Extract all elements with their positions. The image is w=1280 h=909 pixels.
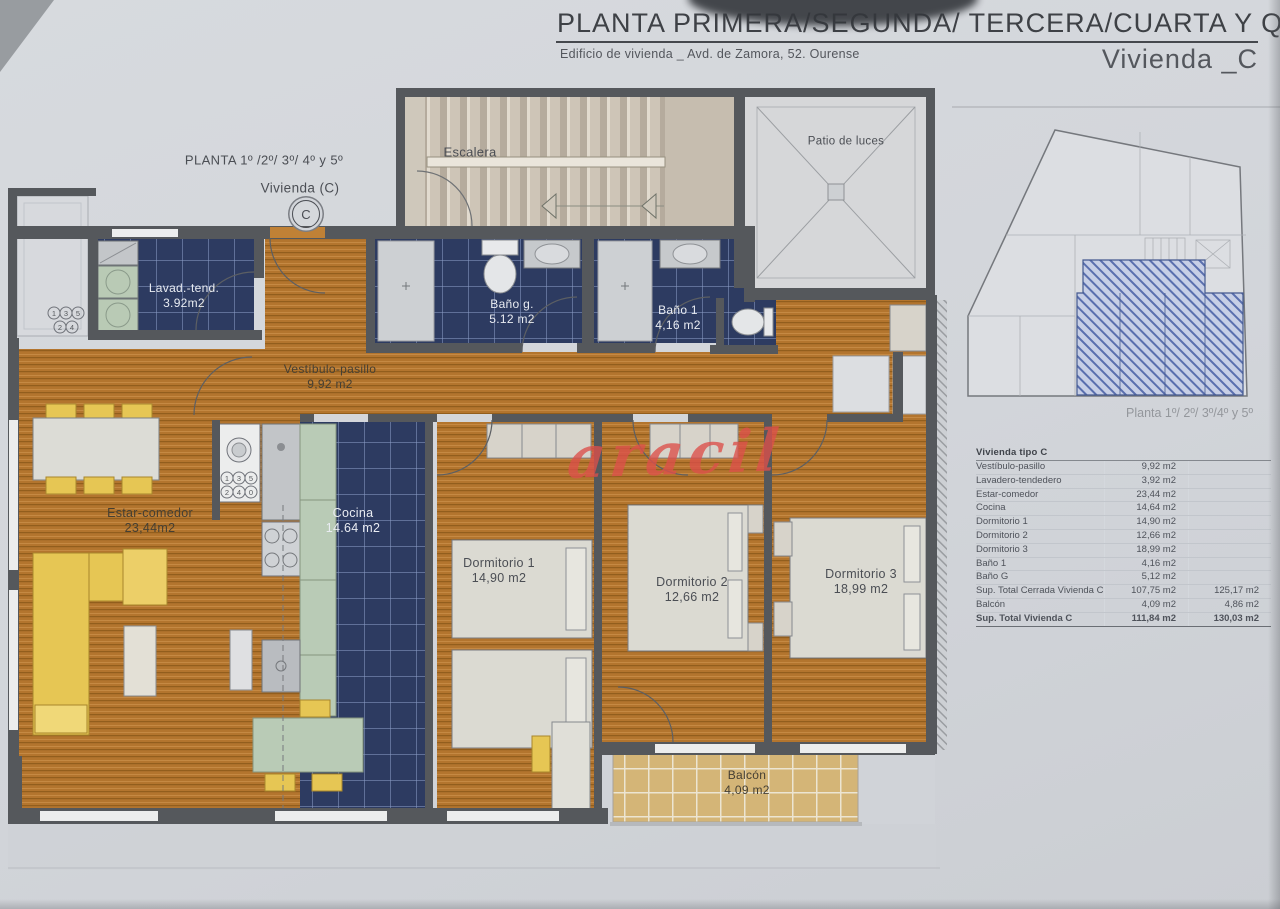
shower-tray-icon: [598, 241, 652, 341]
room-name: Dormitorio 1: [463, 556, 535, 570]
label-balcon: Balcón 4,09 m2: [724, 768, 769, 798]
stool-icon: [265, 774, 295, 791]
patio-de-luces: [745, 97, 926, 288]
dresser-icon: [890, 305, 926, 351]
row-value2: [1188, 571, 1271, 584]
chair-icon: [46, 477, 76, 494]
row-label: Balcón: [976, 599, 1104, 612]
row-label: Dormitorio 2: [976, 530, 1104, 543]
room-name: Lavad.-tend.: [149, 281, 219, 295]
label-bano-g: Baño g. 5.12 m2: [489, 297, 534, 327]
row-value2: [1188, 502, 1271, 515]
label-cocina: Cocina 14.64 m2: [326, 506, 381, 536]
stairwell: [405, 97, 734, 226]
label-dormitorio2: Dormitorio 2 12,66 m2: [656, 575, 728, 605]
row-value2: 125,17 m2: [1188, 585, 1271, 598]
nightstand-icon: [748, 505, 763, 533]
room-area: 9,92 m2: [307, 377, 352, 391]
svg-text:4: 4: [237, 488, 241, 497]
washer-icon: [98, 266, 138, 298]
room-name: Dormitorio 2: [656, 575, 728, 589]
stool-icon: [532, 736, 550, 772]
coffee-table-icon: [124, 626, 156, 696]
label-escalera: Escalera: [444, 145, 497, 160]
floor-plan-sheet: 1 3 5 2 4 0 1 3 5 2 4: [0, 0, 1280, 909]
patio-drain-icon: [828, 184, 844, 200]
label-vestibulo: Vestíbulo-pasillo 9,92 m2: [284, 362, 377, 392]
title-underline: [556, 41, 1258, 43]
svg-text:2: 2: [225, 488, 229, 497]
row-value: 12,66 m2: [1104, 530, 1188, 543]
svg-text:1: 1: [52, 309, 56, 318]
unit-title: Vivienda _C: [960, 44, 1258, 75]
label-estar: Estar-comedor 23,44m2: [107, 506, 193, 536]
svg-text:3: 3: [64, 309, 68, 318]
table-row: Estar-comedor23,44 m2: [976, 489, 1271, 503]
laundry-fixtures: [98, 241, 138, 331]
row-label: Sup. Total Cerrada Vivienda C: [976, 585, 1104, 598]
row-value: 3,92 m2: [1104, 475, 1188, 488]
photo-edge-shadow: [1268, 0, 1280, 909]
row-value: 107,75 m2: [1104, 585, 1188, 598]
desk-icon: [552, 722, 590, 810]
row-value: 14,90 m2: [1104, 516, 1188, 529]
room-name: Baño g.: [490, 297, 533, 311]
room-area: 14,90 m2: [472, 571, 527, 585]
shower-tray-icon: [378, 241, 434, 341]
svg-text:3: 3: [237, 474, 241, 483]
room-name: Baño 1: [658, 303, 698, 317]
surfaces-table: Vivienda tipo C Vestíbulo-pasillo9,92 m2…: [976, 446, 1271, 627]
room-name: Dormitorio 3: [825, 567, 897, 581]
row-value2: [1188, 558, 1271, 571]
svg-text:4: 4: [70, 323, 74, 332]
table-row: Baño 14,16 m2: [976, 558, 1271, 572]
kitchen-sink-icon: [262, 640, 300, 692]
svg-text:5: 5: [76, 309, 80, 318]
row-label: Lavadero-tendedero: [976, 475, 1104, 488]
row-value2: [1188, 544, 1271, 557]
page-subtitle: Edificio de vivienda _ Avd. de Zamora, 5…: [560, 47, 860, 61]
row-value: 4,16 m2: [1104, 558, 1188, 571]
label-dormitorio3: Dormitorio 3 18,99 m2: [825, 567, 897, 597]
fridge-icon: [262, 424, 300, 520]
row-label: Sup. Total Vivienda C: [976, 613, 1104, 626]
stool-icon: [312, 774, 342, 791]
room-area: 5.12 m2: [489, 312, 534, 326]
table-row: Dormitorio 318,99 m2: [976, 544, 1271, 558]
room-area: 14.64 m2: [326, 521, 381, 535]
row-label: Dormitorio 3: [976, 544, 1104, 557]
room-area: 4,16 m2: [655, 318, 700, 332]
row-value: 111,84 m2: [1104, 613, 1188, 626]
room-name: Vestíbulo-pasillo: [284, 362, 377, 376]
row-value2: 130,03 m2: [1188, 613, 1271, 626]
photo-edge-shadow: [0, 899, 1280, 909]
svg-text:1: 1: [225, 474, 229, 483]
table-title: Vivienda tipo C: [976, 446, 1271, 461]
chair-icon: [122, 477, 152, 494]
aracil-watermark: aracil: [564, 416, 786, 492]
label-patio: Patio de luces: [808, 135, 884, 150]
table-row: Sup. Total Cerrada Vivienda C107,75 m212…: [976, 585, 1271, 599]
room-area: 12,66 m2: [665, 590, 720, 604]
row-value: 5,12 m2: [1104, 571, 1188, 584]
room-area: 3.92m2: [163, 296, 205, 310]
row-value: 9,92 m2: [1104, 461, 1188, 474]
nightstand-icon: [748, 623, 763, 651]
room-area: 18,99 m2: [834, 582, 889, 596]
room-name: Cocina: [333, 506, 374, 520]
row-value: 23,44 m2: [1104, 489, 1188, 502]
table-row: Dormitorio 114,90 m2: [976, 516, 1271, 530]
table-row-total: Sup. Total Vivienda C111,84 m2130,03 m2: [976, 613, 1271, 627]
row-value2: [1188, 461, 1271, 474]
row-label: Baño 1: [976, 558, 1104, 571]
nightstand-icon: [774, 602, 792, 636]
stool-icon: [300, 700, 330, 717]
room-area: 4,09 m2: [724, 783, 769, 797]
toilet-icon: [482, 240, 518, 255]
svg-text:5: 5: [249, 474, 253, 483]
room-name: Balcón: [728, 768, 767, 782]
plan-note-line2: Vivienda (C): [261, 181, 340, 196]
balcony-rail: [610, 822, 862, 826]
nightstand-icon: [774, 522, 792, 556]
row-value2: [1188, 530, 1271, 543]
row-label: Cocina: [976, 502, 1104, 515]
label-bano-1: Baño 1 4,16 m2: [655, 303, 700, 333]
row-value: 18,99 m2: [1104, 544, 1188, 557]
table-row: Vestíbulo-pasillo9,92 m2: [976, 461, 1271, 475]
row-label: Dormitorio 1: [976, 516, 1104, 529]
row-value2: [1188, 516, 1271, 529]
label-dormitorio1: Dormitorio 1 14,90 m2: [463, 556, 535, 586]
label-lavadero: Lavad.-tend. 3.92m2: [149, 281, 219, 311]
kitchen-counter: [300, 424, 336, 716]
row-label: Baño G: [976, 571, 1104, 584]
row-value2: [1188, 489, 1271, 502]
table-row: Baño G5,12 m2: [976, 571, 1271, 585]
row-label: Estar-comedor: [976, 489, 1104, 502]
svg-text:2: 2: [58, 323, 62, 332]
chair-icon: [84, 477, 114, 494]
row-value2: 4,86 m2: [1188, 599, 1271, 612]
svg-text:0: 0: [249, 488, 253, 497]
room-area: 23,44m2: [125, 521, 176, 535]
unit-badge: C: [292, 200, 320, 228]
room-name: Estar-comedor: [107, 506, 193, 520]
table-row: Cocina14,64 m2: [976, 502, 1271, 516]
kitchen-table-icon: [253, 718, 363, 772]
row-value2: [1188, 475, 1271, 488]
dryer-icon: [98, 299, 138, 331]
plan-note-line1: PLANTA 1º /2º/ 3º/ 4º y 5º: [185, 153, 343, 168]
table-row: Lavadero-tendedero3,92 m2: [976, 475, 1271, 489]
table-row: Dormitorio 212,66 m2: [976, 530, 1271, 544]
row-label: Vestíbulo-pasillo: [976, 461, 1104, 474]
row-value: 4,09 m2: [1104, 599, 1188, 612]
building-overview-plan: [952, 107, 1280, 396]
overview-caption: Planta 1º/ 2º/ 3º/4º y 5º: [1126, 406, 1280, 420]
table-row: Balcón4,09 m24,86 m2: [976, 599, 1271, 613]
closet-icon: [833, 356, 889, 412]
dining-table-icon: [33, 418, 159, 480]
row-value: 14,64 m2: [1104, 502, 1188, 515]
toilet-icon: [764, 308, 773, 336]
